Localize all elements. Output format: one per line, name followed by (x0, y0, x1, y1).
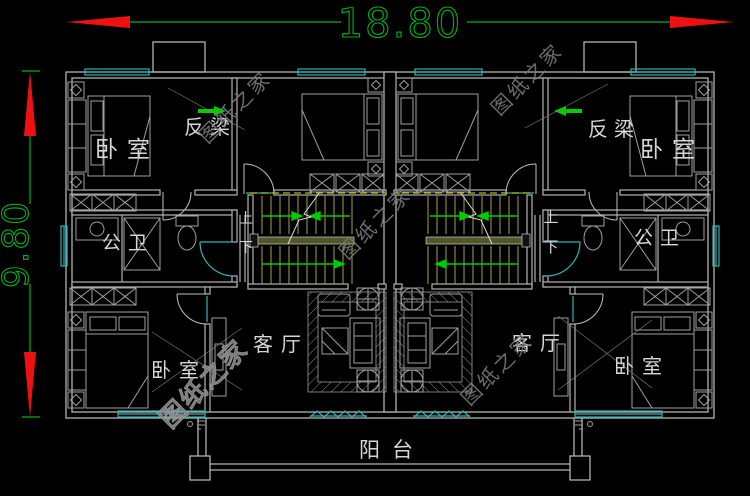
top-flue-right (584, 42, 636, 72)
label-bedroom-top-right: 卧室 (640, 137, 704, 163)
label-stair-up-left: 上 (239, 211, 253, 227)
label-bathroom-right: 公卫 (634, 227, 686, 249)
label-living-left: 客厅 (253, 332, 309, 356)
top-flue-left (153, 42, 205, 72)
watermark-top-right: 图纸之家 (486, 38, 568, 120)
label-beam-right: 反梁 (588, 117, 640, 141)
floor-plan-canvas: 18.80 9.80 卧室 反梁 公卫 上 下 客厅 卧室 反梁 卧室 公卫 上… (0, 0, 750, 496)
height-dimension-text: 9.80 (0, 200, 37, 288)
cad-drawing: 18.80 9.80 卧室 反梁 公卫 上 下 客厅 卧室 反梁 卧室 公卫 上… (0, 0, 750, 496)
width-dimension-text: 18.80 (338, 1, 463, 47)
label-stair-down-right: 下 (543, 238, 558, 256)
label-balcony: 阳台 (359, 438, 425, 462)
watermarks: 图纸之家 图纸之家 图纸之家 图纸之家 图纸之家 (153, 38, 568, 435)
label-stair-down-left: 下 (239, 240, 253, 256)
label-stair-up-right: 上 (543, 208, 558, 226)
label-bedroom-bottom-right: 卧室 (614, 354, 670, 378)
watermark-bottom-left-solid: 图纸之家 (153, 333, 254, 434)
label-bedroom-top-left: 卧室 (95, 137, 159, 163)
label-bathroom-left: 公卫 (102, 232, 154, 254)
